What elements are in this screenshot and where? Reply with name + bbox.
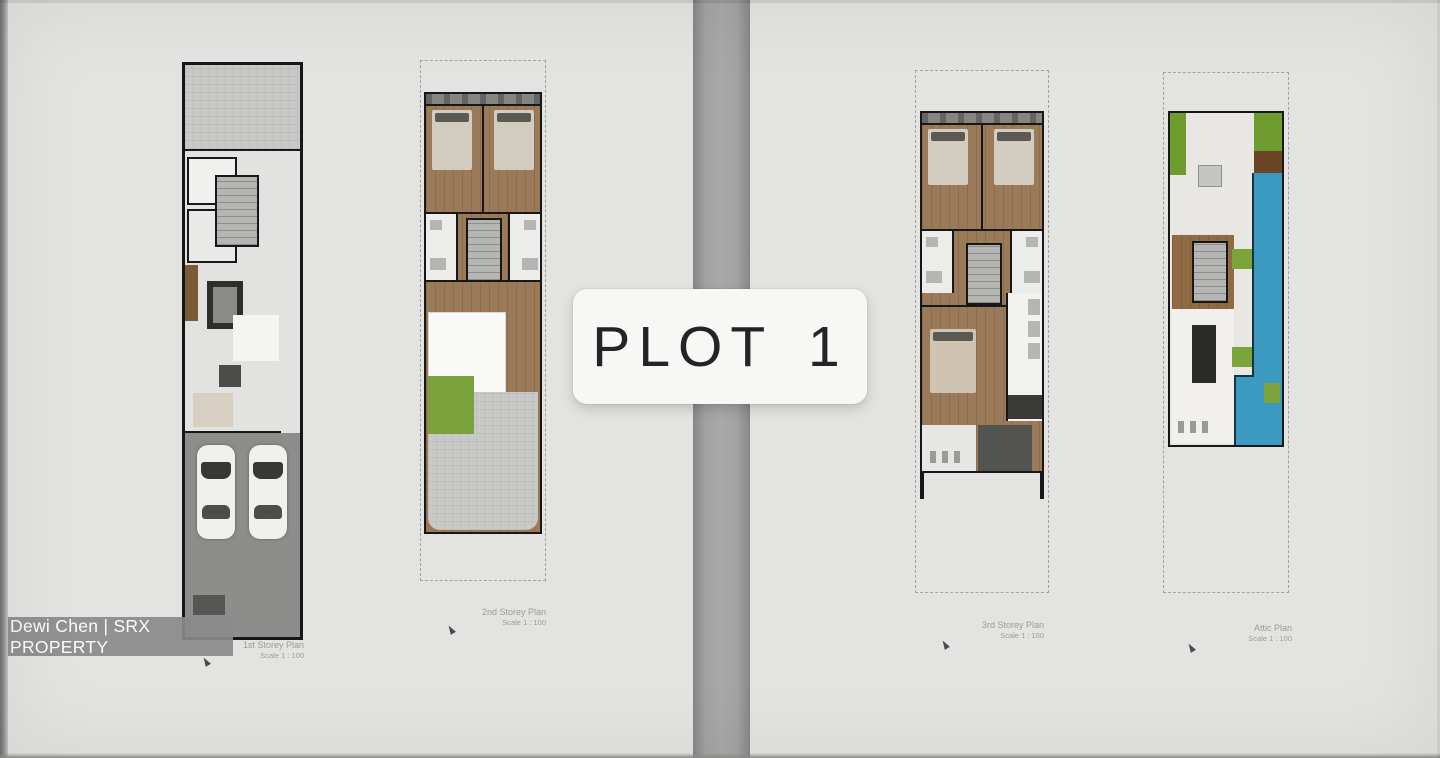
wash-basin xyxy=(1026,237,1038,247)
timber-deck xyxy=(1254,151,1282,173)
third-storey-plan-drawing xyxy=(920,111,1044,473)
planter-grass xyxy=(1254,113,1282,151)
plan-title: 3rd Storey Plan xyxy=(964,620,1044,631)
staircase xyxy=(466,218,502,282)
planter-grass xyxy=(428,376,474,434)
outdoor-table xyxy=(1198,165,1222,187)
bath-room xyxy=(922,231,954,293)
plan-title: 2nd Storey Plan xyxy=(466,607,546,618)
balcony-ledge xyxy=(922,113,1042,125)
plot-label-text: PLOT 1 xyxy=(592,314,847,380)
bath-room xyxy=(508,214,540,280)
staircase xyxy=(1192,241,1228,303)
plan-title: 1st Storey Plan xyxy=(228,640,304,651)
toilet xyxy=(430,258,446,270)
bath-room xyxy=(426,214,458,280)
kitchen xyxy=(1006,293,1042,421)
plan-caption: Attic Plan Scale 1 : 100 xyxy=(1236,623,1292,643)
window-mark xyxy=(942,451,948,463)
utility-room xyxy=(978,425,1032,471)
staircase xyxy=(966,243,1002,305)
first-storey-plan-drawing xyxy=(182,62,303,640)
planter-grass xyxy=(1264,383,1280,403)
plan-caption: 3rd Storey Plan Scale 1 : 100 xyxy=(964,620,1044,640)
second-storey-plan-drawing xyxy=(424,92,542,534)
window-mark xyxy=(1190,421,1196,433)
watermark: Dewi Chen | SRX PROPERTY xyxy=(0,617,233,656)
kitchen-island xyxy=(219,365,241,387)
plan-scale: Scale 1 : 100 xyxy=(466,618,546,627)
bed xyxy=(432,110,472,170)
third-storey-plan-boundary xyxy=(915,70,1049,593)
wash-basin xyxy=(430,220,442,230)
north-arrow-icon xyxy=(940,639,950,650)
balcony-ledge xyxy=(426,94,540,106)
cabinet xyxy=(185,265,198,321)
wash-basin xyxy=(926,237,938,247)
north-arrow-icon xyxy=(201,656,211,667)
plan-scale: Scale 1 : 100 xyxy=(228,651,304,660)
appliance xyxy=(1028,299,1040,315)
wall-stub xyxy=(1040,473,1044,499)
page-bottom-edge xyxy=(0,753,1440,758)
window-mark xyxy=(1178,421,1184,433)
page-top-edge xyxy=(0,0,1440,3)
swimming-pool xyxy=(1252,173,1282,377)
planter-grass xyxy=(1170,113,1186,175)
landing-floor xyxy=(922,425,976,471)
plan-caption: 2nd Storey Plan Scale 1 : 100 xyxy=(466,607,546,627)
forecourt-paving xyxy=(185,65,300,151)
plan-scale: Scale 1 : 100 xyxy=(964,631,1044,640)
wash-basin xyxy=(524,220,536,230)
drain-grating xyxy=(193,595,225,615)
bed xyxy=(994,129,1034,185)
toilet xyxy=(926,271,942,283)
plan-caption: 1st Storey Plan Scale 1 : 100 xyxy=(228,640,304,660)
north-arrow-icon xyxy=(1186,642,1196,653)
bed xyxy=(494,110,534,170)
car-top-view-icon xyxy=(197,445,235,539)
planter-grass xyxy=(1232,249,1252,269)
floorplan-sheet: 1st Storey Plan Scale 1 : 100 xyxy=(0,0,1440,758)
window-mark xyxy=(954,451,960,463)
dining-area xyxy=(233,315,279,361)
bath-room xyxy=(1010,231,1042,293)
attic-plan-boundary xyxy=(1163,72,1289,593)
corridor-wall xyxy=(922,305,1008,307)
party-wall xyxy=(482,106,484,212)
pool-edge xyxy=(1234,375,1252,377)
bed xyxy=(930,329,976,393)
north-arrow-icon xyxy=(446,624,456,635)
watermark-text: Dewi Chen | SRX PROPERTY xyxy=(10,616,233,658)
attic-plan-drawing xyxy=(1168,111,1284,447)
bbq-counter xyxy=(1192,325,1216,383)
window-mark xyxy=(930,451,936,463)
page-left-edge xyxy=(0,0,8,758)
corridor-wall xyxy=(426,280,540,282)
toilet xyxy=(1024,271,1040,283)
appliance xyxy=(1028,343,1040,359)
appliance xyxy=(1028,321,1040,337)
wall-stub xyxy=(920,473,924,499)
driveway xyxy=(185,433,300,637)
toilet xyxy=(522,258,538,270)
planter-grass xyxy=(1232,347,1252,367)
plot-label: PLOT 1 xyxy=(573,289,867,404)
plan-scale: Scale 1 : 100 xyxy=(1236,634,1292,643)
kitchen-counter xyxy=(1008,395,1042,419)
plan-title: Attic Plan xyxy=(1236,623,1292,634)
party-wall xyxy=(981,125,983,229)
staircase xyxy=(215,175,259,247)
living-rug xyxy=(193,393,233,427)
window-mark xyxy=(1202,421,1208,433)
car-top-view-icon xyxy=(249,445,287,539)
second-storey-plan-boundary xyxy=(420,60,546,581)
bed xyxy=(928,129,968,185)
